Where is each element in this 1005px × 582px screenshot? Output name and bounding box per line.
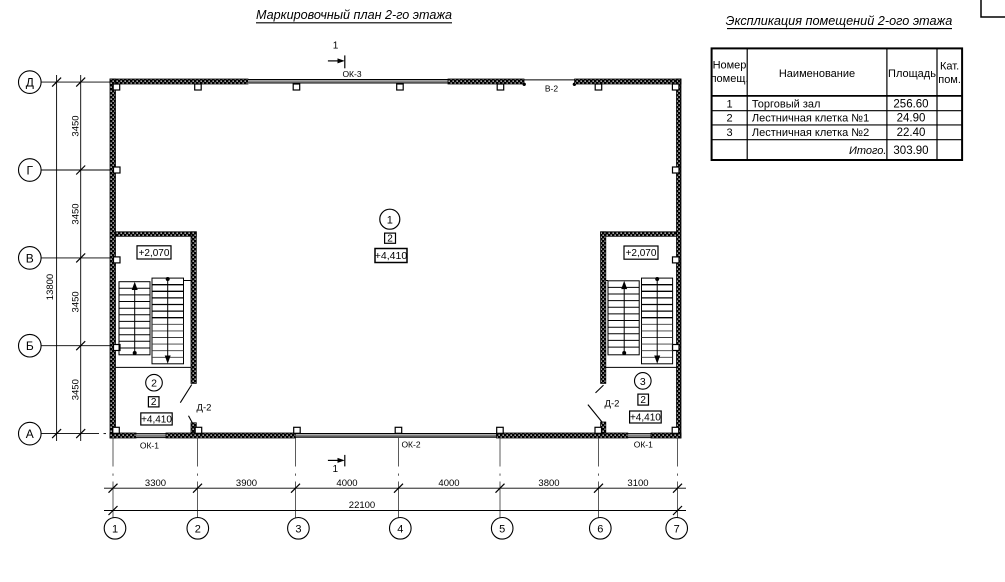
svg-text:4: 4 [397, 524, 403, 536]
svg-text:3: 3 [726, 127, 732, 139]
svg-text:24.90: 24.90 [897, 113, 926, 125]
svg-text:1: 1 [112, 524, 118, 536]
svg-text:1: 1 [726, 99, 732, 111]
svg-text:Номер: Номер [713, 60, 747, 72]
svg-text:пом.: пом. [938, 74, 961, 86]
svg-text:2: 2 [387, 234, 393, 245]
svg-text:3450: 3450 [71, 379, 82, 400]
svg-text:22100: 22100 [349, 500, 375, 511]
svg-text:+4,410: +4,410 [375, 250, 408, 262]
svg-text:Площадь: Площадь [888, 68, 936, 80]
svg-text:2: 2 [195, 524, 201, 536]
svg-text:+2,070: +2,070 [139, 248, 170, 259]
svg-text:Б: Б [26, 339, 34, 353]
svg-text:Итого.: Итого. [849, 145, 887, 157]
svg-text:Кат.: Кат. [940, 61, 959, 73]
svg-text:2: 2 [726, 113, 732, 125]
svg-text:4000: 4000 [438, 478, 459, 489]
svg-text:Д-2: Д-2 [197, 403, 212, 414]
svg-text:2: 2 [151, 378, 157, 390]
svg-text:Г: Г [27, 164, 34, 178]
svg-text:Экспликация помещений 2-ого эт: Экспликация помещений 2-ого этажа [726, 14, 953, 28]
svg-text:+4,410: +4,410 [630, 413, 661, 424]
svg-text:3800: 3800 [538, 478, 559, 489]
svg-text:2: 2 [640, 395, 646, 406]
svg-text:3450: 3450 [71, 291, 82, 312]
svg-text:1: 1 [387, 215, 393, 227]
svg-text:Маркировочный план 2-го этажа: Маркировочный план 2-го этажа [256, 8, 452, 22]
svg-text:Торговый зал: Торговый зал [752, 99, 821, 111]
svg-text:3450: 3450 [71, 115, 82, 136]
svg-text:А: А [26, 427, 34, 441]
svg-text:303.90: 303.90 [893, 145, 928, 157]
svg-text:22.40: 22.40 [897, 127, 926, 139]
svg-text:1: 1 [333, 464, 339, 475]
svg-text:ОК-1: ОК-1 [140, 440, 159, 450]
svg-text:3100: 3100 [627, 478, 648, 489]
svg-text:3: 3 [295, 524, 301, 536]
svg-text:3900: 3900 [236, 478, 257, 489]
svg-text:+2,070: +2,070 [626, 248, 657, 259]
svg-text:Д-2: Д-2 [605, 399, 620, 410]
svg-text:2: 2 [151, 397, 157, 408]
svg-text:13800: 13800 [45, 274, 56, 300]
svg-text:помещ.: помещ. [711, 73, 749, 85]
svg-text:5: 5 [499, 524, 505, 536]
svg-text:ОК-3: ОК-3 [342, 69, 361, 79]
svg-text:ОК-2: ОК-2 [401, 440, 420, 450]
svg-text:Лестничная клетка №2: Лестничная клетка №2 [752, 127, 869, 139]
svg-text:3300: 3300 [145, 478, 166, 489]
svg-text:Д: Д [26, 76, 34, 90]
svg-text:7: 7 [674, 524, 680, 536]
svg-text:3: 3 [640, 376, 646, 388]
svg-text:Наименование: Наименование [779, 68, 855, 80]
svg-text:6: 6 [597, 524, 603, 536]
svg-text:+4,410: +4,410 [141, 415, 172, 426]
svg-text:Лестничная клетка №1: Лестничная клетка №1 [752, 113, 869, 125]
svg-text:4000: 4000 [336, 478, 357, 489]
svg-text:В: В [26, 251, 34, 265]
svg-text:1: 1 [333, 41, 339, 52]
svg-text:В-2: В-2 [545, 83, 559, 93]
svg-text:3450: 3450 [71, 203, 82, 224]
svg-text:256.60: 256.60 [893, 99, 928, 111]
svg-text:ОК-1: ОК-1 [634, 440, 653, 450]
